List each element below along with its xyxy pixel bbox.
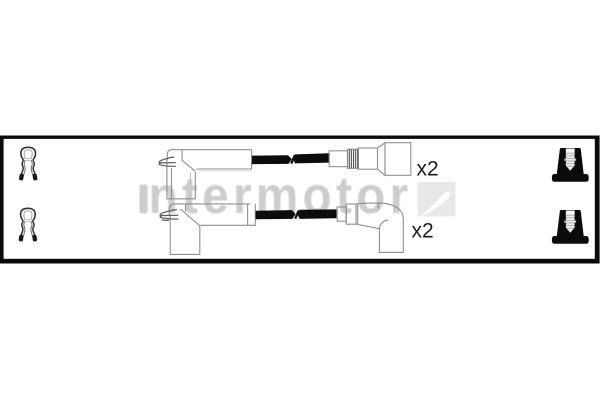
- svg-text:x2: x2: [417, 158, 439, 181]
- svg-text:x2: x2: [412, 220, 434, 243]
